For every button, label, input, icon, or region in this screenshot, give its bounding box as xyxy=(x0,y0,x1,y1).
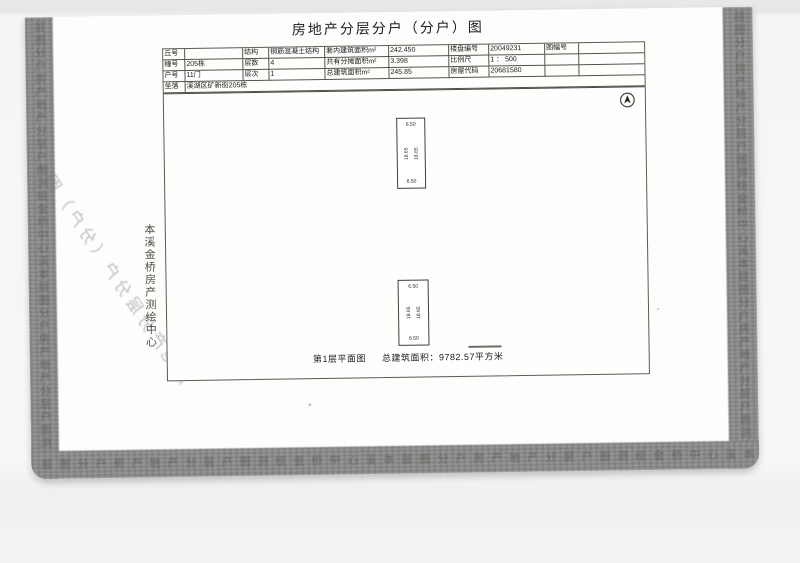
plan-unit-2: 6.50 18.65 18.65 6.50 xyxy=(398,279,430,345)
scan-speck xyxy=(657,308,659,310)
table-cell xyxy=(185,48,243,60)
table-cell xyxy=(545,65,579,77)
scan-speck xyxy=(473,71,476,73)
table-cell: 242.450 xyxy=(389,45,449,57)
table-cell: 钢筋混凝土结构 xyxy=(269,47,325,59)
dimension-label: 6.50 xyxy=(398,179,425,185)
dimension-label: 6.50 xyxy=(399,335,428,341)
table-cell: 幢号 xyxy=(163,60,185,71)
surveyor-stamp-text: 本溪金桥房产测绘中心 xyxy=(141,223,159,368)
table-cell: 丘号 xyxy=(163,49,185,60)
table-cell: 20049231 xyxy=(489,44,545,56)
table-cell: 层次 xyxy=(243,70,269,81)
table-cell: 1 ： 500 xyxy=(489,55,545,67)
table-cell: 1 xyxy=(269,69,325,81)
table-cell: 245.85 xyxy=(389,67,449,79)
north-arrow-icon xyxy=(619,91,636,108)
scanned-document-viewport: { "title": "房地产分层分户（分户）图", "table": { "r… xyxy=(0,0,800,563)
plan-frame: 丘号 结构 钢筋混凝土结构 套内建筑面积m² 242.450 楼盘编号 2004… xyxy=(162,41,650,381)
dimension-label: 6.50 xyxy=(397,122,424,128)
plan-caption-floor: 第1层平面图 xyxy=(313,353,366,364)
plan-unit-1: 6.50 18.65 18.65 6.50 xyxy=(396,117,426,188)
dimension-group: 18.65 18.65 xyxy=(403,147,419,160)
table-cell: 4 xyxy=(269,58,325,70)
table-cell: 11门 xyxy=(185,70,243,82)
table-cell xyxy=(545,54,579,66)
table-cell: 20681580 xyxy=(489,66,545,78)
scan-stray-mark xyxy=(469,345,502,347)
dimension-label: 6.50 xyxy=(399,283,428,289)
page-content: 房地产分层分户（分户）图 房地产分层分户（分户）图 本溪金桥房产测绘中心 丘号 … xyxy=(53,7,729,451)
plan-caption-area: 总建筑面积：9782.57平方米 xyxy=(382,351,504,363)
table-cell: 结构 xyxy=(243,48,269,59)
table-cell: 楼盘编号 xyxy=(449,45,489,57)
scan-speck xyxy=(308,403,311,406)
plan-caption: 第1层平面图总建筑面积：9782.57平方米 xyxy=(168,347,649,367)
dimension-label: 18.65 xyxy=(405,306,411,319)
document-title: 房地产分层分户（分户）图 xyxy=(53,13,723,43)
table-cell: 图幅号 xyxy=(545,43,579,55)
table-cell: 房屋代码 xyxy=(449,67,489,79)
property-info-table: 丘号 结构 钢筋混凝土结构 套内建筑面积m² 242.450 楼盘编号 2004… xyxy=(163,42,645,94)
dimension-label: 18.65 xyxy=(413,147,419,160)
dimension-label: 18.65 xyxy=(415,306,421,319)
scanned-page: 层图分户房产地产分层户图测绘金桥中心溪本层图分户房产地产分层户图测绘金桥中心溪本… xyxy=(25,7,760,480)
table-cell: 205栋 xyxy=(185,59,243,71)
table-cell: 层数 xyxy=(243,59,269,70)
dimension-label: 18.65 xyxy=(403,147,409,160)
table-cell: 3.398 xyxy=(389,56,449,68)
location-label: 坐落 xyxy=(164,82,186,93)
table-cell: 户号 xyxy=(163,71,185,82)
dimension-group: 18.65 18.65 xyxy=(405,306,421,319)
table-cell: 比例尺 xyxy=(449,56,489,68)
